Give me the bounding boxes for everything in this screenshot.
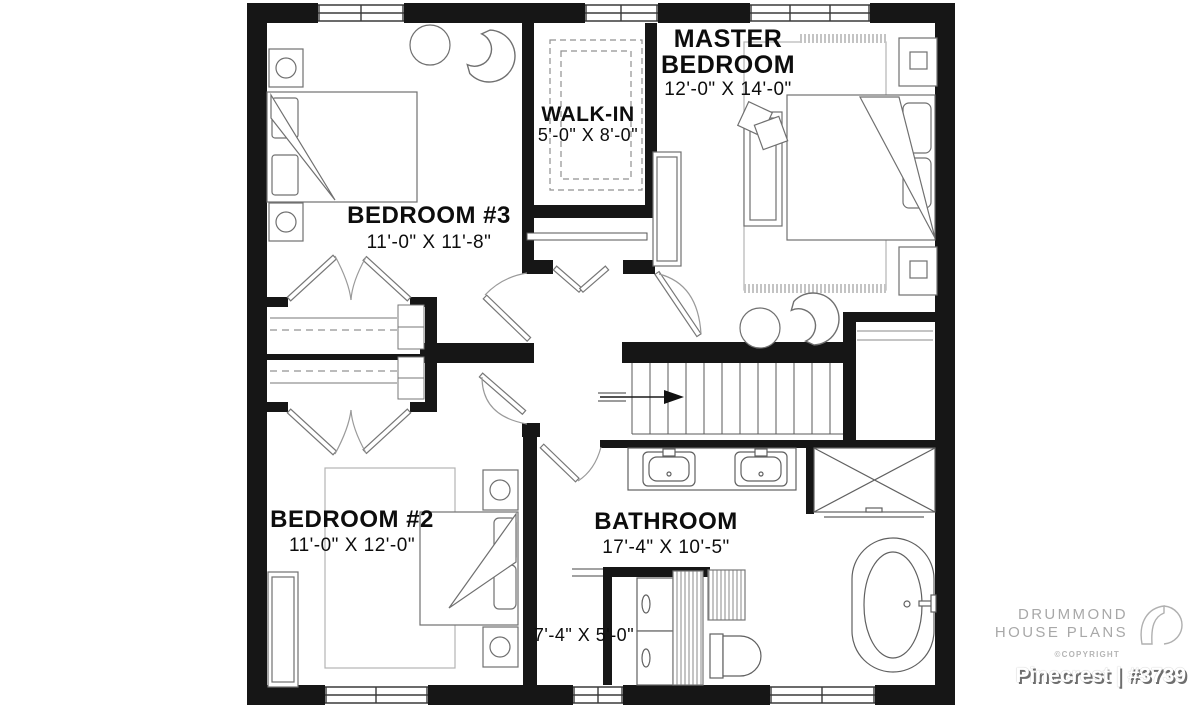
walkin-dims: 5'-0" X 8'-0" (538, 125, 638, 145)
staircase (632, 363, 843, 434)
hall-shelf (527, 233, 647, 240)
bedroom-closets (270, 305, 424, 399)
round-table-icon (740, 308, 780, 348)
window-walkin-top (585, 3, 658, 23)
towel-bar (572, 569, 603, 576)
copyright-label: ©COPYRIGHT (971, 651, 1120, 659)
window-bedroom2-bottom (325, 685, 428, 705)
plan-title: Pinecrest | #3739 (971, 665, 1186, 686)
window-bathroom-bottom (770, 685, 875, 705)
nightstand (483, 470, 518, 510)
laundry-dims: 7'-4" X 5'-0" (534, 625, 634, 645)
bed-icon (420, 512, 518, 625)
nightstand (483, 627, 518, 667)
vanity-double-sink (628, 448, 796, 490)
nightstand (269, 49, 303, 87)
master-bedroom-label: MASTER (674, 25, 783, 53)
louvered-door (708, 570, 745, 620)
brand-name: DRUMMOND HOUSE PLANS (995, 606, 1128, 642)
bed-icon (787, 95, 935, 240)
bedroom2-dims: 11'-0" X 12'-0" (289, 535, 415, 556)
window-master-top (750, 3, 870, 23)
master-bedroom-dims: 12'-0" X 14'-0" (664, 79, 792, 100)
bedroom3-dims: 11'-0" X 11'-8" (367, 232, 492, 253)
nightstand (899, 38, 937, 86)
louvered-door (673, 571, 703, 685)
master-bedroom-label: BEDROOM (661, 51, 795, 79)
bed-icon (267, 92, 417, 202)
window-bedroom3-top (318, 3, 404, 23)
stairs-direction-arrow (598, 390, 684, 404)
brand-name-line1: DRUMMOND (995, 606, 1128, 624)
toilet-icon (710, 634, 761, 678)
bathroom-label: BATHROOM (594, 508, 738, 535)
shower-icon (814, 448, 935, 517)
bedroom3-label: BEDROOM #3 (347, 202, 511, 229)
nightstand (899, 247, 937, 295)
linen-closet-shelves (857, 331, 933, 340)
armchair-icon (788, 284, 848, 349)
drummond-logo-icon (1134, 600, 1186, 648)
brand-name-line2: HOUSE PLANS (995, 624, 1128, 642)
brand-block: DRUMMOND HOUSE PLANS ©COPYRIGHT Pinecres… (971, 600, 1186, 686)
walkin-label: WALK-IN (541, 103, 634, 126)
bathtub-icon (852, 538, 936, 672)
bathroom-dims: 17'-4" X 10'-5" (602, 537, 730, 558)
bench (738, 102, 788, 226)
bathroom-fixtures (628, 448, 936, 685)
armchair-icon (464, 26, 524, 91)
floor-plan-image: MASTER BEDROOM 12'-0" X 14'-0" WALK-IN 5… (0, 0, 1200, 711)
window-hall-bottom (573, 685, 623, 705)
washer-dryer-stack (637, 578, 673, 685)
nightstand (269, 203, 303, 241)
dresser (268, 572, 298, 687)
bedroom2-furniture (268, 468, 518, 687)
round-table-icon (410, 25, 450, 65)
dresser (653, 152, 681, 266)
bedroom2-label: BEDROOM #2 (270, 506, 434, 533)
